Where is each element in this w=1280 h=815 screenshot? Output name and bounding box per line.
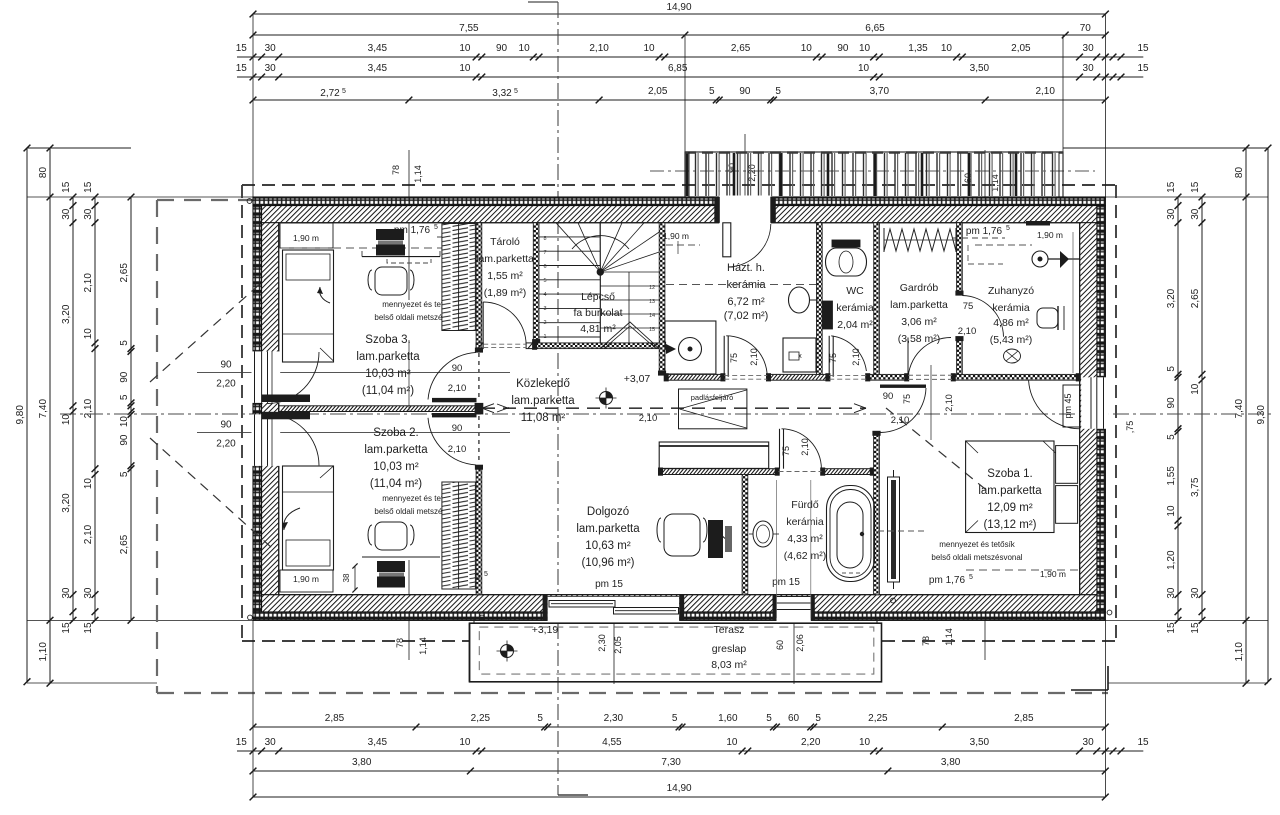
svg-text:Szoba 2.: Szoba 2. <box>373 427 418 439</box>
svg-text:5: 5 <box>543 278 546 284</box>
svg-text:lam.parketta: lam.parketta <box>890 299 948 311</box>
svg-text:3,50: 3,50 <box>970 737 990 748</box>
svg-text:13: 13 <box>649 299 655 305</box>
svg-text:1,90 m: 1,90 m <box>1037 230 1063 240</box>
svg-text:5: 5 <box>342 88 346 95</box>
svg-text:14,90: 14,90 <box>666 2 691 13</box>
svg-text:2,10: 2,10 <box>944 394 954 412</box>
svg-text:kerámia: kerámia <box>726 279 766 291</box>
svg-text:10,63 m²: 10,63 m² <box>585 540 631 552</box>
svg-text:2,65: 2,65 <box>119 534 130 554</box>
svg-text:2,10: 2,10 <box>749 348 759 366</box>
svg-text:3: 3 <box>543 306 546 312</box>
svg-text:2,65: 2,65 <box>731 43 751 54</box>
svg-text:15: 15 <box>236 737 248 748</box>
svg-text:7,55: 7,55 <box>459 23 479 34</box>
svg-text:90: 90 <box>837 43 849 54</box>
svg-text:30: 30 <box>61 208 72 220</box>
svg-text:15: 15 <box>236 63 248 74</box>
svg-text:15: 15 <box>1137 63 1149 74</box>
svg-text:75: 75 <box>729 353 739 363</box>
svg-text:90: 90 <box>739 86 751 97</box>
svg-text:10: 10 <box>459 737 471 748</box>
svg-text:(11,04 m²): (11,04 m²) <box>362 385 414 397</box>
svg-text:75: 75 <box>963 301 974 312</box>
svg-text:3,45: 3,45 <box>368 63 388 74</box>
svg-text:10: 10 <box>83 328 94 340</box>
svg-text:5: 5 <box>1006 225 1010 232</box>
svg-text:3,50: 3,50 <box>970 63 990 74</box>
svg-text:greslap: greslap <box>712 643 747 655</box>
svg-text:2,20: 2,20 <box>216 439 236 450</box>
svg-text:6: 6 <box>543 264 546 270</box>
svg-text:4,81 m²: 4,81 m² <box>580 323 616 335</box>
svg-text:5: 5 <box>434 224 438 231</box>
svg-text:1,90 m: 1,90 m <box>1040 569 1066 579</box>
svg-text:2,30: 2,30 <box>604 713 624 724</box>
svg-text:Terasz: Terasz <box>714 624 745 636</box>
svg-text:90: 90 <box>452 423 463 434</box>
svg-text:78: 78 <box>395 638 405 648</box>
svg-text:3,20: 3,20 <box>61 493 72 513</box>
svg-text:5: 5 <box>537 713 543 724</box>
svg-text:15: 15 <box>61 181 72 193</box>
svg-text:12,09 m²: 12,09 m² <box>987 502 1033 514</box>
svg-text:2,85: 2,85 <box>325 713 345 724</box>
svg-text:10: 10 <box>459 63 471 74</box>
svg-text:90: 90 <box>452 363 463 374</box>
svg-text:5: 5 <box>766 713 772 724</box>
svg-text:2,10: 2,10 <box>83 273 94 293</box>
svg-text:6,72 m²: 6,72 m² <box>727 296 765 308</box>
svg-text:+3,19: +3,19 <box>532 624 559 636</box>
svg-text:30: 30 <box>265 43 277 54</box>
svg-text:2,30: 2,30 <box>597 634 607 652</box>
svg-text:10,03 m²: 10,03 m² <box>373 461 419 473</box>
svg-text:10: 10 <box>61 414 72 426</box>
svg-text:80: 80 <box>38 167 49 179</box>
svg-text:2,25: 2,25 <box>868 713 888 724</box>
svg-text:Közlekedő: Közlekedő <box>516 378 570 390</box>
svg-text:90: 90 <box>220 420 232 431</box>
svg-text:lam.parketta: lam.parketta <box>364 444 428 456</box>
svg-text:1,14: 1,14 <box>418 637 428 655</box>
svg-text:1,35: 1,35 <box>908 43 928 54</box>
svg-text:x: x <box>798 353 802 360</box>
svg-text:2,10: 2,10 <box>958 326 977 337</box>
svg-text:5: 5 <box>1166 434 1177 440</box>
svg-text:3,20: 3,20 <box>61 304 72 324</box>
svg-text:padlásfeljáró: padlásfeljáró <box>691 393 734 402</box>
svg-text:10: 10 <box>801 43 813 54</box>
svg-text:5: 5 <box>484 571 488 578</box>
svg-text:30: 30 <box>83 587 94 599</box>
svg-text:2,72: 2,72 <box>320 88 340 99</box>
svg-text:10: 10 <box>119 416 130 428</box>
svg-text:2,20: 2,20 <box>801 737 821 748</box>
svg-text:5: 5 <box>709 86 715 97</box>
svg-text:1,90 m: 1,90 m <box>663 231 689 241</box>
svg-text:pm 45: pm 45 <box>1063 393 1073 418</box>
svg-text:2,10: 2,10 <box>83 524 94 544</box>
svg-text:lam.parketta: lam.parketta <box>576 523 640 535</box>
svg-text:8: 8 <box>543 236 546 242</box>
svg-text:15: 15 <box>1166 622 1177 634</box>
svg-text:2,65: 2,65 <box>1190 288 1201 308</box>
svg-text:38: 38 <box>342 573 351 582</box>
svg-text:2,10: 2,10 <box>1035 86 1055 97</box>
svg-text:80: 80 <box>1234 167 1245 179</box>
svg-text:9,30: 9,30 <box>1256 405 1267 425</box>
svg-text:Szoba 3.: Szoba 3. <box>365 334 410 346</box>
svg-text:15: 15 <box>1190 622 1201 634</box>
svg-text:10: 10 <box>859 737 871 748</box>
svg-text:11,08 m²: 11,08 m² <box>521 412 566 424</box>
svg-text:pm 15: pm 15 <box>595 579 623 590</box>
svg-text:1,60: 1,60 <box>718 713 738 724</box>
svg-text:2,10: 2,10 <box>851 348 861 366</box>
svg-text:Fürdő: Fürdő <box>791 499 819 511</box>
svg-text:mennyezet és tetősík: mennyezet és tetősík <box>939 540 1016 549</box>
svg-text:78: 78 <box>921 636 931 646</box>
svg-text:5: 5 <box>119 340 130 346</box>
svg-text:4: 4 <box>543 292 546 298</box>
svg-text:5: 5 <box>775 86 781 97</box>
svg-text:3,75: 3,75 <box>1190 477 1201 497</box>
svg-text:15: 15 <box>1137 737 1149 748</box>
svg-text:6,65: 6,65 <box>865 23 885 34</box>
svg-text:kerámia: kerámia <box>992 302 1030 314</box>
svg-text:15: 15 <box>1137 43 1149 54</box>
svg-text:1,55 m²: 1,55 m² <box>487 270 523 282</box>
svg-text:pm 1,76: pm 1,76 <box>966 226 1003 237</box>
svg-text:1,10: 1,10 <box>1234 642 1245 662</box>
svg-text:5: 5 <box>514 88 518 95</box>
svg-text:lam.parketta: lam.parketta <box>978 485 1042 497</box>
svg-text:3,45: 3,45 <box>368 43 388 54</box>
svg-text:30: 30 <box>265 63 277 74</box>
svg-text:(1,89 m²): (1,89 m²) <box>484 287 527 299</box>
svg-text:75: 75 <box>828 353 838 363</box>
svg-text:15: 15 <box>649 327 655 333</box>
svg-text:90: 90 <box>727 163 737 173</box>
svg-text:2,06: 2,06 <box>795 634 805 652</box>
svg-text:15: 15 <box>1190 181 1201 193</box>
svg-text:5: 5 <box>119 394 130 400</box>
svg-text:2,10: 2,10 <box>448 444 467 455</box>
svg-text:2,05: 2,05 <box>613 636 623 654</box>
svg-text:3,20: 3,20 <box>1166 288 1177 308</box>
svg-text:Zuhanyzó: Zuhanyzó <box>988 285 1034 297</box>
svg-text:2,25: 2,25 <box>471 713 491 724</box>
svg-text:2,10: 2,10 <box>83 398 94 418</box>
svg-text:7,30: 7,30 <box>661 757 681 768</box>
svg-text:10: 10 <box>83 478 94 490</box>
svg-text:(5,43 m²): (5,43 m²) <box>990 334 1033 346</box>
svg-text:5: 5 <box>672 713 678 724</box>
svg-text:Házt. h.: Házt. h. <box>727 262 765 274</box>
svg-text:75: 75 <box>781 446 791 456</box>
svg-text:2: 2 <box>543 320 546 326</box>
svg-text:5: 5 <box>119 471 130 477</box>
svg-text:30: 30 <box>1166 587 1177 599</box>
svg-text:90: 90 <box>220 360 232 371</box>
svg-text:(11,04 m²): (11,04 m²) <box>370 478 422 490</box>
svg-text:3,06 m²: 3,06 m² <box>901 316 937 328</box>
svg-text:4,33 m²: 4,33 m² <box>787 533 823 545</box>
svg-text:30: 30 <box>61 587 72 599</box>
svg-text:,75: ,75 <box>1125 421 1135 434</box>
svg-text:10: 10 <box>726 737 738 748</box>
svg-text:1,90 m: 1,90 m <box>293 233 319 243</box>
svg-text:10: 10 <box>1190 383 1201 395</box>
svg-text:2,10: 2,10 <box>589 43 609 54</box>
svg-text:3,80: 3,80 <box>941 757 961 768</box>
svg-text:5: 5 <box>1166 366 1177 372</box>
svg-text:30: 30 <box>1166 208 1177 220</box>
svg-text:12: 12 <box>649 285 655 291</box>
svg-text:1,14: 1,14 <box>944 628 954 646</box>
svg-text:(13,12 m²): (13,12 m²) <box>983 519 1036 531</box>
svg-text:kerámia: kerámia <box>786 516 824 528</box>
svg-text:30: 30 <box>1190 587 1201 599</box>
svg-text:2,04 m²: 2,04 m² <box>837 319 873 331</box>
svg-text:pm 1,76: pm 1,76 <box>929 575 966 586</box>
svg-text:3,80: 3,80 <box>352 757 372 768</box>
svg-text:(3,58 m²): (3,58 m²) <box>898 333 941 345</box>
svg-text:+3,07: +3,07 <box>624 373 651 385</box>
svg-text:4,55: 4,55 <box>602 737 622 748</box>
svg-text:30: 30 <box>1083 63 1095 74</box>
svg-text:15: 15 <box>1166 181 1177 193</box>
svg-text:90: 90 <box>1166 397 1177 409</box>
svg-text:75: 75 <box>902 394 912 404</box>
svg-text:WC: WC <box>846 285 864 297</box>
svg-text:3,45: 3,45 <box>368 737 388 748</box>
svg-text:10: 10 <box>643 43 655 54</box>
svg-text:60: 60 <box>775 640 785 650</box>
svg-text:2,10: 2,10 <box>448 383 467 394</box>
svg-text:10: 10 <box>859 43 871 54</box>
svg-text:1,55: 1,55 <box>1166 466 1177 486</box>
svg-text:7: 7 <box>543 250 546 256</box>
svg-text:Tároló: Tároló <box>490 236 520 248</box>
svg-text:15: 15 <box>236 43 248 54</box>
svg-text:belső oldali metszésvonal: belső oldali metszésvonal <box>931 553 1022 562</box>
svg-text:10: 10 <box>519 43 531 54</box>
svg-text:2,05: 2,05 <box>648 86 668 97</box>
svg-text:2,10: 2,10 <box>639 413 658 424</box>
svg-text:lam.parketta: lam.parketta <box>511 395 575 407</box>
svg-text:9,80: 9,80 <box>15 405 26 425</box>
svg-text:Gardrób: Gardrób <box>900 282 939 294</box>
svg-text:70: 70 <box>1080 23 1092 34</box>
svg-text:60: 60 <box>788 713 800 724</box>
svg-text:2,85: 2,85 <box>1014 713 1034 724</box>
svg-text:Dolgozó: Dolgozó <box>587 506 629 518</box>
svg-text:Szoba 1.: Szoba 1. <box>987 468 1032 480</box>
svg-text:(7,02 m²): (7,02 m²) <box>724 310 769 322</box>
svg-text:15: 15 <box>61 622 72 634</box>
svg-text:(4,62 m²): (4,62 m²) <box>784 550 827 562</box>
svg-text:78: 78 <box>391 165 401 175</box>
svg-text:(10,96 m²): (10,96 m²) <box>581 557 634 569</box>
svg-text:30: 30 <box>1083 737 1095 748</box>
svg-text:1,14: 1,14 <box>413 165 423 183</box>
svg-text:lam.parketta: lam.parketta <box>476 253 534 265</box>
svg-text:10,03 m²: 10,03 m² <box>365 368 411 380</box>
svg-text:8,03 m²: 8,03 m² <box>711 659 747 671</box>
svg-text:2,05: 2,05 <box>1011 43 1031 54</box>
svg-text:10: 10 <box>858 63 870 74</box>
svg-text:30: 30 <box>1190 208 1201 220</box>
svg-text:14: 14 <box>649 313 655 319</box>
svg-text:14,90: 14,90 <box>667 783 692 794</box>
svg-text:30: 30 <box>83 208 94 220</box>
svg-text:90: 90 <box>496 43 508 54</box>
svg-text:Lépcső: Lépcső <box>581 291 615 303</box>
svg-text:lam.parketta: lam.parketta <box>356 351 420 363</box>
svg-text:1,10: 1,10 <box>38 642 49 662</box>
svg-text:10: 10 <box>459 43 471 54</box>
svg-text:15: 15 <box>83 181 94 193</box>
svg-text:5: 5 <box>969 574 973 581</box>
svg-text:fa burkolat: fa burkolat <box>573 307 622 319</box>
svg-text:90: 90 <box>119 371 130 383</box>
svg-text:10: 10 <box>941 43 953 54</box>
svg-text:90: 90 <box>119 434 130 446</box>
svg-text:7,40: 7,40 <box>38 399 49 419</box>
svg-text:7,40: 7,40 <box>1234 399 1245 419</box>
svg-text:5: 5 <box>815 713 821 724</box>
svg-text:30: 30 <box>265 737 277 748</box>
svg-text:kerámia: kerámia <box>836 302 874 314</box>
svg-text:90: 90 <box>883 391 894 402</box>
svg-text:1: 1 <box>543 334 546 340</box>
svg-text:30: 30 <box>1083 43 1095 54</box>
svg-text:1,90 m: 1,90 m <box>293 574 319 584</box>
svg-text:2,65: 2,65 <box>119 263 130 283</box>
svg-text:4,86 m²: 4,86 m² <box>993 317 1029 329</box>
svg-text:2,10: 2,10 <box>800 438 810 456</box>
svg-text:2,20: 2,20 <box>216 379 236 390</box>
svg-text:15: 15 <box>83 622 94 634</box>
svg-text:1,20: 1,20 <box>1166 550 1177 570</box>
svg-text:3,70: 3,70 <box>870 86 890 97</box>
svg-text:3,32: 3,32 <box>492 88 512 99</box>
svg-text:10: 10 <box>1166 505 1177 517</box>
